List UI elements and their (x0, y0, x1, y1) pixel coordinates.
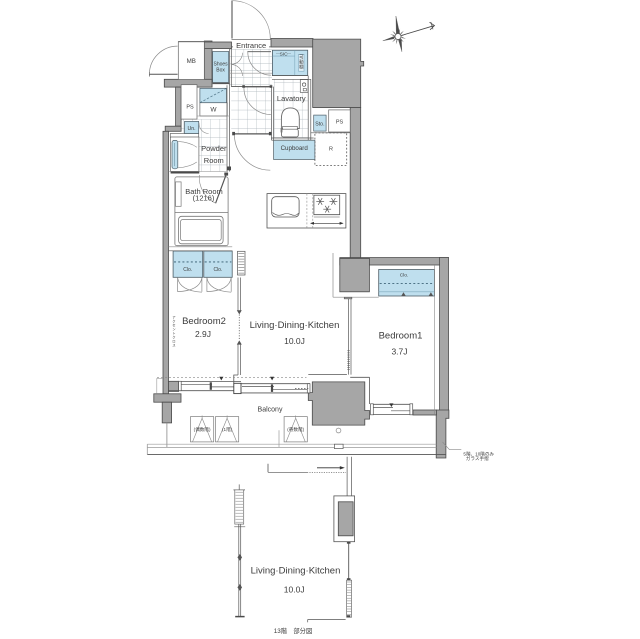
svg-text:MB: MB (187, 58, 196, 65)
svg-text:13階 部分図: 13階 部分図 (274, 626, 313, 635)
svg-text:Living·Dining·Kitchen: Living·Dining·Kitchen (250, 320, 340, 331)
svg-text:Un.: Un. (187, 126, 195, 132)
svg-text:Lavatory: Lavatory (277, 94, 306, 103)
svg-text:(奇数階): (奇数階) (287, 426, 304, 433)
svg-text:Clo.: Clo. (213, 267, 222, 273)
svg-text:10.0J: 10.0J (284, 336, 305, 346)
svg-text:Box: Box (216, 67, 225, 73)
svg-text:アクセントクロス: アクセントクロス (171, 314, 175, 347)
svg-text:Bedroom2: Bedroom2 (182, 316, 226, 327)
svg-text:Powder: Powder (201, 144, 227, 153)
svg-text:PS: PS (186, 104, 194, 110)
svg-text:2.9J: 2.9J (195, 329, 211, 339)
svg-text:(1階): (1階) (222, 426, 233, 433)
svg-text:PS: PS (336, 120, 344, 126)
svg-text:R: R (329, 146, 333, 152)
svg-text:Sto.: Sto. (315, 122, 324, 128)
svg-text:SIC: SIC (280, 51, 289, 57)
svg-text:Bedroom1: Bedroom1 (379, 331, 423, 342)
svg-text:棚: 棚 (299, 64, 304, 71)
svg-text:3.7J: 3.7J (391, 347, 407, 357)
svg-text:Room: Room (204, 156, 224, 165)
svg-text:10.0J: 10.0J (284, 584, 305, 594)
svg-text:(1216): (1216) (193, 194, 215, 203)
svg-text:(偶数階): (偶数階) (194, 426, 211, 433)
svg-text:Living·Dining·Kitchen: Living·Dining·Kitchen (251, 565, 341, 576)
svg-text:Entrance: Entrance (236, 41, 266, 50)
svg-text:W: W (210, 106, 217, 113)
svg-text:Clo.: Clo. (183, 267, 192, 273)
svg-text:Balcony: Balcony (258, 407, 283, 414)
svg-text:ガラス手摺: ガラス手摺 (466, 455, 489, 462)
svg-text:Clo.: Clo. (400, 272, 409, 278)
svg-text:Cupboard: Cupboard (281, 145, 309, 152)
